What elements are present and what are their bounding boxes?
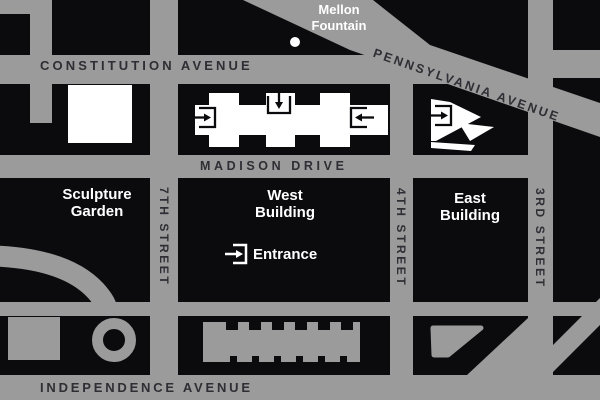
southwest-square-building <box>8 317 60 360</box>
madison-drive-label: MADISON DRIVE <box>200 159 348 173</box>
constitution-avenue-east <box>548 50 600 78</box>
west-building-line1: West <box>230 187 340 204</box>
seventh-street-label: 7TH STREET <box>157 187 171 286</box>
fourth-street-label: 4TH STREET <box>394 188 408 287</box>
mellon-fountain-dot <box>290 37 300 47</box>
mellon-fountain-line1: Mellon <box>300 2 378 18</box>
west-building-footprint <box>195 93 388 147</box>
east-building-line1: East <box>415 190 525 207</box>
jefferson-drive <box>0 302 600 316</box>
independence-avenue-label: INDEPENDENCE AVENUE <box>40 380 253 395</box>
west-building-line2: Building <box>230 204 340 221</box>
entrance-label: Entrance <box>253 246 317 263</box>
east-building-footprint-triangle <box>459 123 494 141</box>
gallery-area-map: CONSTITUTION AVENUE PENNSYLVANIA AVENUE … <box>0 0 600 400</box>
east-building-label: East Building <box>415 190 525 224</box>
west-building-label: West Building <box>230 187 340 221</box>
street-corner-stub <box>0 0 30 14</box>
ring-building <box>98 324 131 357</box>
sculpture-garden-line2: Garden <box>42 203 152 220</box>
constitution-avenue-label: CONSTITUTION AVENUE <box>40 58 253 73</box>
sculpture-garden-label: Sculpture Garden <box>42 186 152 220</box>
third-street-label: 3RD STREET <box>533 188 547 289</box>
diagonal-cut-building <box>433 328 481 355</box>
northwest-white-block <box>68 85 132 143</box>
sculpture-garden-line1: Sculpture <box>42 186 152 203</box>
entrance-legend-icon <box>225 245 246 263</box>
east-building-footprint-strip <box>431 142 475 151</box>
east-building-line2: Building <box>415 207 525 224</box>
mellon-fountain-label: Mellon Fountain <box>300 2 378 34</box>
mellon-fountain-line2: Fountain <box>300 18 378 34</box>
